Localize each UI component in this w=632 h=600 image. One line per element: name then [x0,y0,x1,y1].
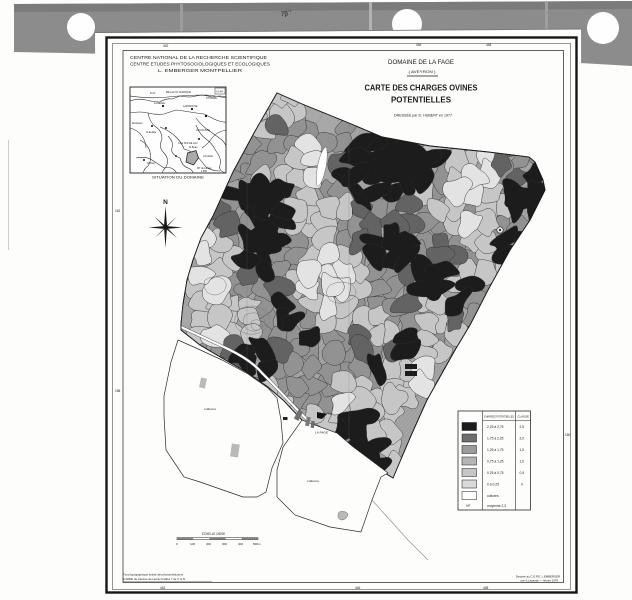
svg-text:0,5: 0,5 [520,471,525,475]
svg-text:CLASSE: CLASSE [518,415,530,419]
svg-text:162: 162 [115,209,121,213]
svg-text:300: 300 [222,542,227,546]
svg-text:( AVEYRON ): ( AVEYRON ) [409,69,437,74]
svg-text:2,25 à 2,75: 2,25 à 2,75 [487,425,504,429]
svg-text:0: 0 [521,483,523,487]
svg-text:DRESSÉE par D. HUBERT en 1977: DRESSÉE par D. HUBERT en 1977 [394,113,452,118]
svg-text:400: 400 [238,542,243,546]
svg-text:LAPANOUSE: LAPANOUSE [183,105,198,108]
svg-text:La Bastide: La Bastide [154,102,166,105]
svg-text:cultures: cultures [204,407,217,411]
svg-text:158: 158 [115,389,121,393]
svg-text:moyenne 2,3: moyenne 2,3 [487,504,506,508]
svg-text:500m: 500m [253,542,261,546]
svg-text:cultures: cultures [307,479,320,483]
svg-text:x 800: x 800 [201,170,208,173]
svg-text:CHARGES POTENTIELLES: CHARGES POTENTIELLES [484,415,514,419]
svg-text:ST ROME: ST ROME [206,97,217,100]
svg-text:2,5: 2,5 [520,425,525,429]
svg-text:442: 442 [163,44,169,48]
svg-text:LA FAGE: LA FAGE [203,155,213,158]
svg-text:1,5: 1,5 [520,448,525,452]
svg-text:St Beau: St Beau [189,146,198,149]
svg-text:446: 446 [416,43,422,47]
svg-text:446: 446 [355,586,361,590]
svg-text:0 à 0,25: 0 à 0,25 [487,483,499,487]
svg-text:1,25 à 1,75: 1,25 à 1,75 [487,448,504,452]
svg-text:LA FAGE: LA FAGE [315,431,328,435]
svg-text:St Eulalie: St Eulalie [146,131,157,134]
svg-text:448: 448 [483,586,489,590]
svg-text:St Paul: St Paul [147,162,155,165]
svg-text:D.31: D.31 [150,92,156,95]
svg-text:MILLAU ST AFFRIQUE: MILLAU ST AFFRIQUE [166,91,191,94]
svg-text:CARTE DES CHARGES OVINES: CARTE DES CHARGES OVINES [365,84,478,93]
svg-text:N 44: N 44 [217,90,224,94]
svg-text:0,25 à 0,75: 0,25 à 0,75 [487,471,504,475]
svg-text:Crns PAS DE JAU: Crns PAS DE JAU [178,142,198,145]
svg-text:Montpaon: Montpaon [132,122,143,125]
svg-text:2,0: 2,0 [520,437,525,441]
svg-text:442: 442 [160,586,166,590]
svg-text:200: 200 [206,542,211,546]
svg-text:SITUATION DU DOMAINE: SITUATION DU DOMAINE [152,176,205,180]
svg-text:1,0: 1,0 [520,460,525,464]
svg-text:POTENTIELLES: POTENTIELLES [391,96,452,105]
svg-text:L. EMBERGER MONTPELLIER: L. EMBERGER MONTPELLIER [158,68,242,73]
svg-text:CENTRE ETUDES PHYTOSOCIOLOGIQU: CENTRE ETUDES PHYTOSOCIOLOGIQUES ET ECOL… [130,62,270,67]
svg-text:160: 160 [565,433,571,437]
svg-text:cultures: cultures [487,494,499,498]
svg-text:ECHELLE 1/5000: ECHELLE 1/5000 [202,532,225,536]
svg-text:1/10000 de Causse-du-Larzac fe: 1/10000 de Causse-du-Larzac feuilles 7 d… [123,577,186,581]
svg-text:1,75 à 2,25: 1,75 à 2,25 [487,437,504,441]
svg-text:100: 100 [190,542,195,546]
svg-text:GR CAUSSE: GR CAUSSE [196,129,210,132]
svg-text:0,75 à 1,25: 0,75 à 1,25 [487,460,504,464]
svg-text:CENTRE NATIONAL DE LA RECHERCH: CENTRE NATIONAL DE LA RECHERCHE SCIENTIF… [130,55,267,60]
svg-text:448: 448 [486,43,492,47]
svg-text:DOMAINE DE LA FAGE: DOMAINE DE LA FAGE [388,59,454,66]
svg-text:par S.Lavande — février 1978: par S.Lavande — février 1978 [521,579,559,583]
svg-text:N: N [163,199,168,206]
